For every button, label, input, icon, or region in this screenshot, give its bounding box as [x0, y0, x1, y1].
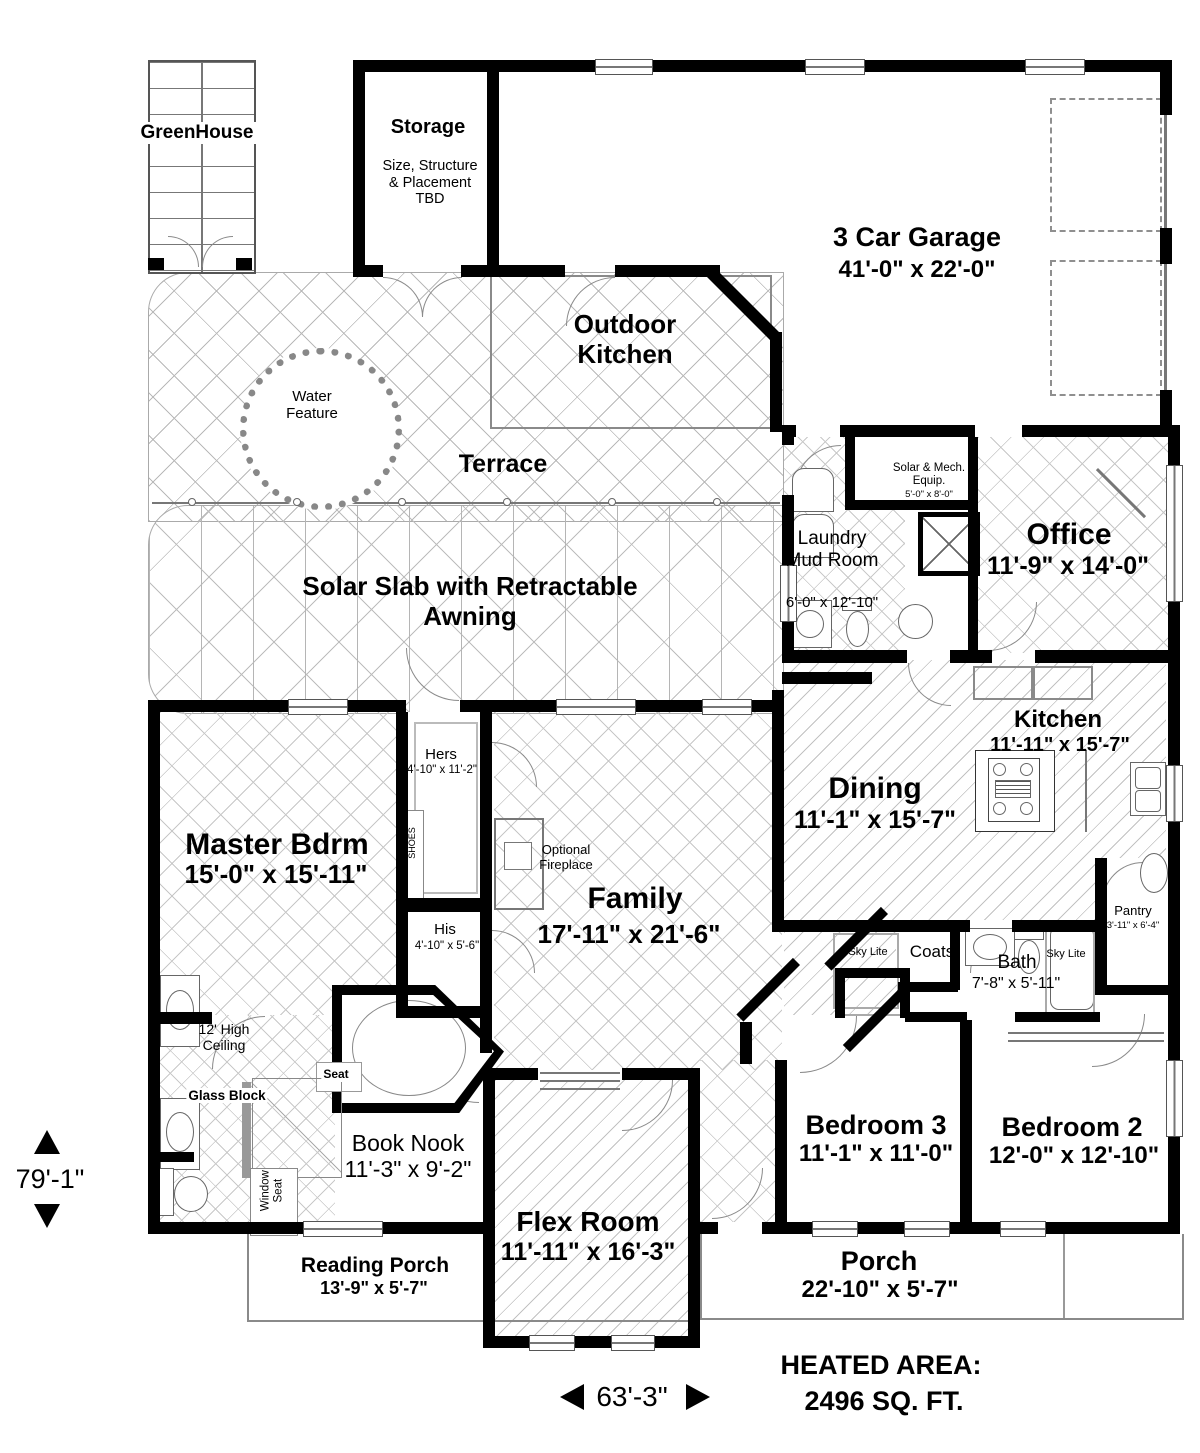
vertical-dimension: 79'-1": [16, 1164, 85, 1195]
laundry-dims: 6'-0" x 12'-10": [786, 594, 878, 611]
window: [1166, 765, 1183, 822]
wall: [1168, 1135, 1180, 1234]
high-ceiling-label: 12' High Ceiling: [193, 1022, 255, 1054]
wall: [1035, 650, 1172, 663]
skylight-outline: [1045, 925, 1095, 1015]
garage-door-line: [1164, 264, 1167, 390]
slab-edge-line: [152, 502, 780, 504]
toilet-bowl-icon: [174, 1176, 208, 1212]
window: [1000, 1221, 1046, 1237]
burner-icon: [1020, 763, 1033, 776]
wall: [782, 672, 872, 684]
office-label: Office: [1026, 518, 1111, 552]
bath-label: Bath: [997, 952, 1036, 974]
window: [595, 59, 653, 75]
wall: [396, 1006, 492, 1018]
flex-dims: 11'-11" x 16'-3": [501, 1238, 676, 1267]
wall: [353, 60, 499, 72]
wall: [148, 258, 164, 270]
step-line: [540, 1080, 620, 1082]
wall: [460, 700, 556, 712]
kitchen-sink-basin: [1135, 790, 1161, 812]
post: [293, 498, 301, 506]
wall: [845, 425, 855, 510]
reading-porch-dims: 13'-9" x 5'-7": [320, 1278, 428, 1299]
wall: [622, 1068, 700, 1080]
kitchen-counter: [1033, 666, 1093, 700]
laundry-sink-basin: [796, 610, 824, 638]
wall: [396, 912, 408, 1012]
wall: [148, 1222, 303, 1234]
wall: [948, 1222, 1000, 1234]
window: [303, 1221, 383, 1237]
sky-lite-right-label: Sky Lite: [1046, 948, 1085, 961]
horizontal-dimension: 63'-3": [596, 1381, 667, 1413]
bedroom2-label: Bedroom 2: [1001, 1112, 1142, 1143]
wall: [900, 968, 910, 1018]
step-line: [540, 1072, 620, 1074]
arrow-right-icon: [686, 1384, 710, 1410]
stove-grill: [995, 780, 1031, 798]
arrow-up-icon: [34, 1130, 60, 1154]
family-dims: 17'-11" x 21'-6": [537, 920, 720, 950]
wall: [750, 700, 784, 712]
wall: [770, 332, 782, 432]
window: [904, 1221, 950, 1237]
wall: [960, 1020, 972, 1222]
kitchen-label: Kitchen: [1014, 706, 1102, 733]
post: [713, 498, 721, 506]
wall: [653, 1336, 700, 1348]
solar-slab-label: Solar Slab with Retractable Awning: [300, 572, 640, 631]
wall: [1012, 920, 1097, 932]
coats-label: Coats: [910, 942, 954, 961]
garage-bay-dashed: [1050, 98, 1162, 232]
wall: [1168, 425, 1180, 465]
wall: [634, 700, 702, 712]
wall: [483, 1336, 529, 1348]
pantry-dims: 3'-11" x 6'-4": [1107, 921, 1159, 932]
pedestal-sink-icon: [898, 604, 933, 639]
flex-label: Flex Room: [516, 1206, 659, 1238]
post: [398, 498, 406, 506]
wall: [782, 425, 796, 437]
wall: [573, 1336, 611, 1348]
toilet-bowl-icon: [846, 611, 869, 647]
hers-dims: 4'-10" x 11'-2": [407, 764, 477, 777]
step-line: [540, 1088, 620, 1090]
arrow-down-icon: [34, 1204, 60, 1228]
mech-dims: 5'-0" x 8'-0": [905, 490, 953, 501]
wall: [346, 700, 406, 712]
reading-porch-label: Reading Porch: [301, 1254, 449, 1278]
window: [1166, 1060, 1183, 1137]
book-nook-dims: 11'-3" x 9'-2": [345, 1156, 472, 1182]
wall: [381, 1222, 485, 1234]
heated-area-line1: HEATED AREA:: [781, 1350, 982, 1381]
wall: [950, 650, 992, 663]
pantry-label: Pantry: [1114, 904, 1152, 919]
window: [529, 1335, 575, 1351]
bath-dims: 7'-8" x 5'-11": [972, 975, 1060, 993]
his-dims: 4'-10" x 5'-6": [415, 940, 479, 953]
wall: [905, 1012, 967, 1022]
wall: [487, 60, 499, 277]
wall: [396, 898, 492, 912]
window: [288, 699, 348, 715]
burner-icon: [993, 802, 1006, 815]
kitchen-dims: 11'-11" x 15'-7": [990, 734, 1130, 757]
wall: [1168, 600, 1180, 765]
window: [812, 1221, 858, 1237]
his-label: His: [434, 921, 456, 938]
wall: [148, 700, 288, 712]
window: [611, 1335, 655, 1351]
book-nook-label: Book Nook: [352, 1130, 465, 1156]
wall: [483, 1068, 538, 1080]
wall: [236, 258, 252, 270]
wall: [856, 1222, 904, 1234]
storage-label: Storage: [391, 116, 465, 139]
heated-area-line2: 2496 SQ. FT.: [804, 1386, 963, 1417]
kitchen-counter-line: [1085, 750, 1087, 832]
wall: [775, 1060, 787, 1222]
seat-label: Seat: [321, 1068, 350, 1082]
wall: [480, 712, 492, 904]
outdoor-kitchen-label: Outdoor Kitchen: [540, 310, 710, 369]
wall: [740, 1022, 752, 1064]
wall: [1160, 228, 1172, 264]
porch-divider-line: [1063, 1234, 1065, 1318]
porch-label: Porch: [841, 1246, 918, 1277]
wall: [762, 1222, 812, 1234]
wall: [845, 500, 975, 510]
wall: [782, 437, 794, 445]
wall: [483, 1068, 495, 1348]
wall: [700, 1222, 718, 1234]
wall: [1095, 858, 1107, 988]
wall: [1022, 425, 1172, 437]
window: [702, 699, 752, 715]
post: [608, 498, 616, 506]
window: [1166, 465, 1183, 602]
storage-note: Size, Structure & Placement TBD: [378, 158, 483, 208]
master-label: Master Bdrm: [185, 828, 368, 862]
bedroom3-dims: 11'-1" x 11'-0": [799, 1140, 953, 1167]
wall: [353, 265, 383, 277]
wall: [772, 690, 784, 932]
water-feature-label: Water Feature: [267, 388, 357, 422]
closet-shelf-line: [1008, 1040, 1164, 1042]
floor-plan: GreenHouse Storage Size, Structure & Pla…: [0, 0, 1200, 1453]
master-sink-icon: [166, 1112, 194, 1152]
wall: [835, 968, 910, 978]
greenhouse-structure: [148, 60, 256, 274]
wall: [1095, 985, 1172, 995]
wall: [1160, 60, 1172, 115]
kitchen-counter: [973, 666, 1033, 700]
wall: [396, 712, 408, 904]
glass-block-label: Glass Block: [186, 1088, 267, 1103]
garage-label: 3 Car Garage: [833, 222, 1001, 253]
wall: [461, 265, 499, 277]
laundry-label: Laundry Mud Room: [780, 528, 885, 571]
fireplace-label: Optional Fireplace: [524, 843, 609, 873]
wall: [353, 60, 365, 277]
window: [805, 59, 865, 75]
garage-bay-dashed: [1050, 260, 1162, 396]
bedroom3-label: Bedroom 3: [805, 1110, 946, 1141]
washer-icon: [792, 468, 834, 512]
terrace-label: Terrace: [459, 450, 548, 479]
post: [188, 498, 196, 506]
greenhouse-label: GreenHouse: [138, 122, 257, 144]
office-dims: 11'-9" x 14'-0": [987, 552, 1149, 581]
kitchen-sink-basin: [1135, 767, 1161, 789]
window: [556, 699, 636, 715]
porch-dims: 22'-10" x 5'-7": [802, 1276, 959, 1303]
pantry-sink-icon: [1140, 853, 1168, 893]
arrow-left-icon: [560, 1384, 584, 1410]
hers-label: Hers: [425, 746, 457, 763]
water-feature-circle: [240, 348, 402, 510]
master-dims: 15'-0" x 15'-11": [184, 860, 367, 890]
dining-dims: 11'-1" x 15'-7": [794, 806, 956, 835]
wall: [1015, 1012, 1100, 1022]
post: [503, 498, 511, 506]
master-sink-icon: [166, 990, 194, 1030]
wall: [840, 425, 975, 437]
garage-dims: 41'-0" x 22'-0": [839, 256, 996, 283]
family-label: Family: [587, 882, 682, 916]
window: [1025, 59, 1085, 75]
shoes-label: SHOES: [408, 818, 418, 868]
bedroom2-dims: 12'-0" x 12'-10": [989, 1142, 1159, 1169]
wall: [499, 265, 565, 277]
garage-door-line: [1164, 115, 1167, 228]
burner-icon: [1020, 802, 1033, 815]
wall: [782, 650, 907, 663]
sky-lite-left-label: Sky Lite: [848, 946, 887, 959]
wall: [480, 1018, 492, 1053]
burner-icon: [993, 763, 1006, 776]
mech-label: Solar & Mech. Equip.: [882, 462, 977, 488]
dining-label: Dining: [828, 772, 921, 806]
wall: [688, 1068, 700, 1348]
wall: [480, 912, 492, 1012]
wall: [1168, 820, 1180, 1060]
toilet-tank-icon: [158, 1168, 174, 1216]
wall: [1044, 1222, 1180, 1234]
wall: [148, 1152, 194, 1162]
closet-shelf-line: [1008, 1032, 1164, 1034]
window-seat-label: Window Seat: [259, 1162, 284, 1220]
